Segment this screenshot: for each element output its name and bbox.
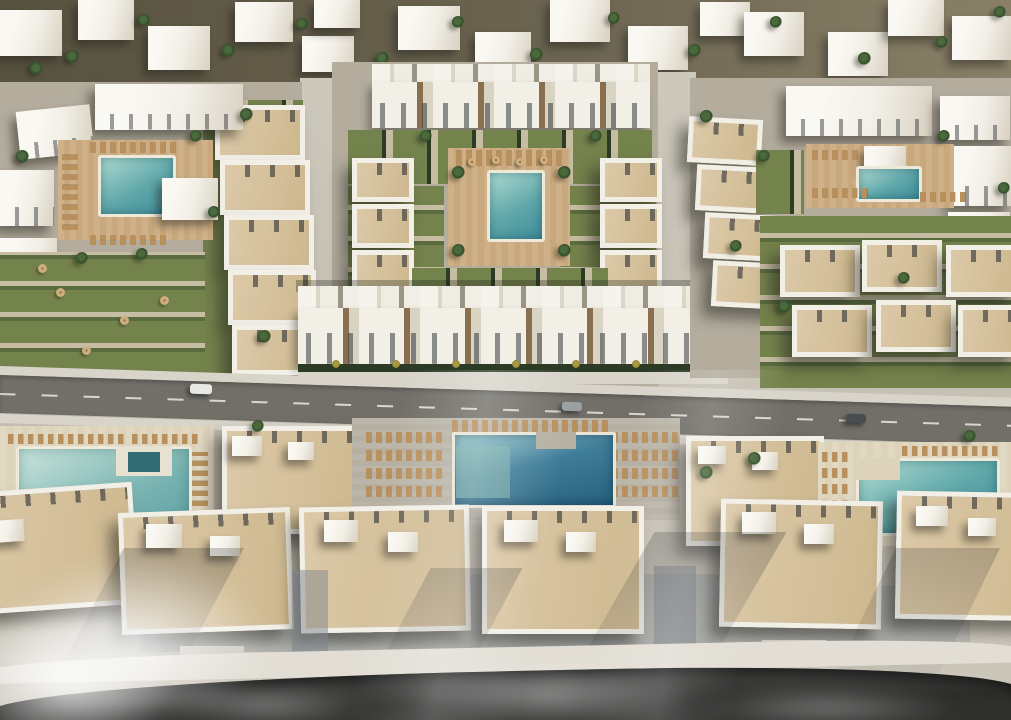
scene-palm (608, 12, 620, 24)
scene-umbrella (540, 156, 548, 164)
scene-palm (558, 244, 571, 257)
scene-palm (700, 110, 713, 123)
center-courtyard-pool (487, 170, 545, 242)
scene-shrub (332, 360, 340, 368)
scene-umbrella (82, 346, 91, 355)
scene-umbrella (56, 288, 65, 297)
apartment-north (786, 86, 932, 136)
background-villa (398, 6, 460, 50)
scene-palm (208, 206, 220, 218)
scene-shrub (452, 360, 460, 368)
scene-palm (420, 130, 432, 142)
render-canvas (0, 0, 1011, 720)
villa-grid (946, 245, 1011, 297)
scene-palm (258, 330, 271, 343)
scene-palm (938, 130, 950, 142)
scene-palm (994, 6, 1006, 18)
scene-palm (16, 150, 29, 163)
scene-palm (452, 166, 465, 179)
scene-townrow-roof (298, 286, 728, 308)
background-villa (0, 10, 62, 56)
scene-palm (898, 272, 910, 284)
apartment-north (940, 96, 1010, 140)
scene-palm (138, 14, 150, 26)
scene-lounge-h (90, 235, 170, 245)
scene-palm (30, 62, 43, 75)
scene-palm (530, 48, 543, 61)
villa-grid (780, 245, 860, 297)
scene-palm (858, 52, 871, 65)
villa-col-west (352, 158, 414, 202)
villa-grid (958, 305, 1011, 357)
scene-palm (66, 50, 79, 63)
scene-townrow-roof (372, 64, 650, 82)
scene-palm (758, 150, 770, 162)
scene-palm (76, 252, 88, 264)
background-villa (888, 0, 944, 36)
background-villa (78, 0, 134, 40)
background-villa (700, 2, 750, 36)
scene-palm (998, 182, 1010, 194)
scene-shrub (392, 360, 400, 368)
sunlight-glare (0, 370, 1011, 720)
scene-lounge-h (812, 188, 872, 198)
scene-palm (296, 18, 308, 30)
scene-palm (936, 36, 948, 48)
scene-palm (240, 108, 253, 121)
scene-palm (590, 130, 602, 142)
villa-col-west (352, 204, 414, 248)
scene-palm (190, 130, 202, 142)
scene-palm (222, 44, 235, 57)
villa-col-east (600, 158, 662, 202)
scene-lounge-v (62, 150, 78, 230)
apartment-west (0, 170, 54, 226)
scene-palm (730, 240, 742, 252)
background-villa (235, 2, 293, 42)
background-villa (550, 0, 610, 42)
scene-palm (770, 16, 782, 28)
scene-umbrella (468, 158, 476, 166)
villa-grid (876, 300, 956, 352)
scene-umbrella (492, 156, 500, 164)
scene-shrub (632, 360, 640, 368)
townhouse-row-main (298, 308, 728, 364)
scene-palm (778, 300, 791, 313)
background-villa (148, 26, 210, 70)
scene-shrub (572, 360, 580, 368)
villa-grid (792, 305, 872, 357)
background-villa (314, 0, 360, 28)
scene-lounge-h (90, 142, 180, 153)
scene-lounge-h (920, 192, 966, 202)
villa-row-east (224, 215, 314, 270)
villa-col-west (687, 116, 763, 166)
townhouse-row-north (372, 82, 650, 128)
scene-palm (452, 16, 464, 28)
scene-umbrella (160, 296, 169, 305)
scene-palm (452, 244, 465, 257)
scene-umbrella (38, 264, 47, 273)
apartment-north (95, 84, 243, 130)
left-south-gardens (0, 252, 205, 374)
villa-row-east (220, 160, 310, 215)
scene-palm (688, 44, 701, 57)
scene-palm (136, 248, 148, 260)
scene-umbrella (120, 316, 129, 325)
scene-umbrella (516, 158, 524, 166)
scene-lounge-h (812, 150, 860, 160)
villa-grid (862, 240, 942, 292)
background-villa (952, 16, 1011, 60)
scene-shrub (512, 360, 520, 368)
villa-col-east (600, 204, 662, 248)
scene-palm (558, 166, 571, 179)
background-villa (828, 32, 888, 76)
